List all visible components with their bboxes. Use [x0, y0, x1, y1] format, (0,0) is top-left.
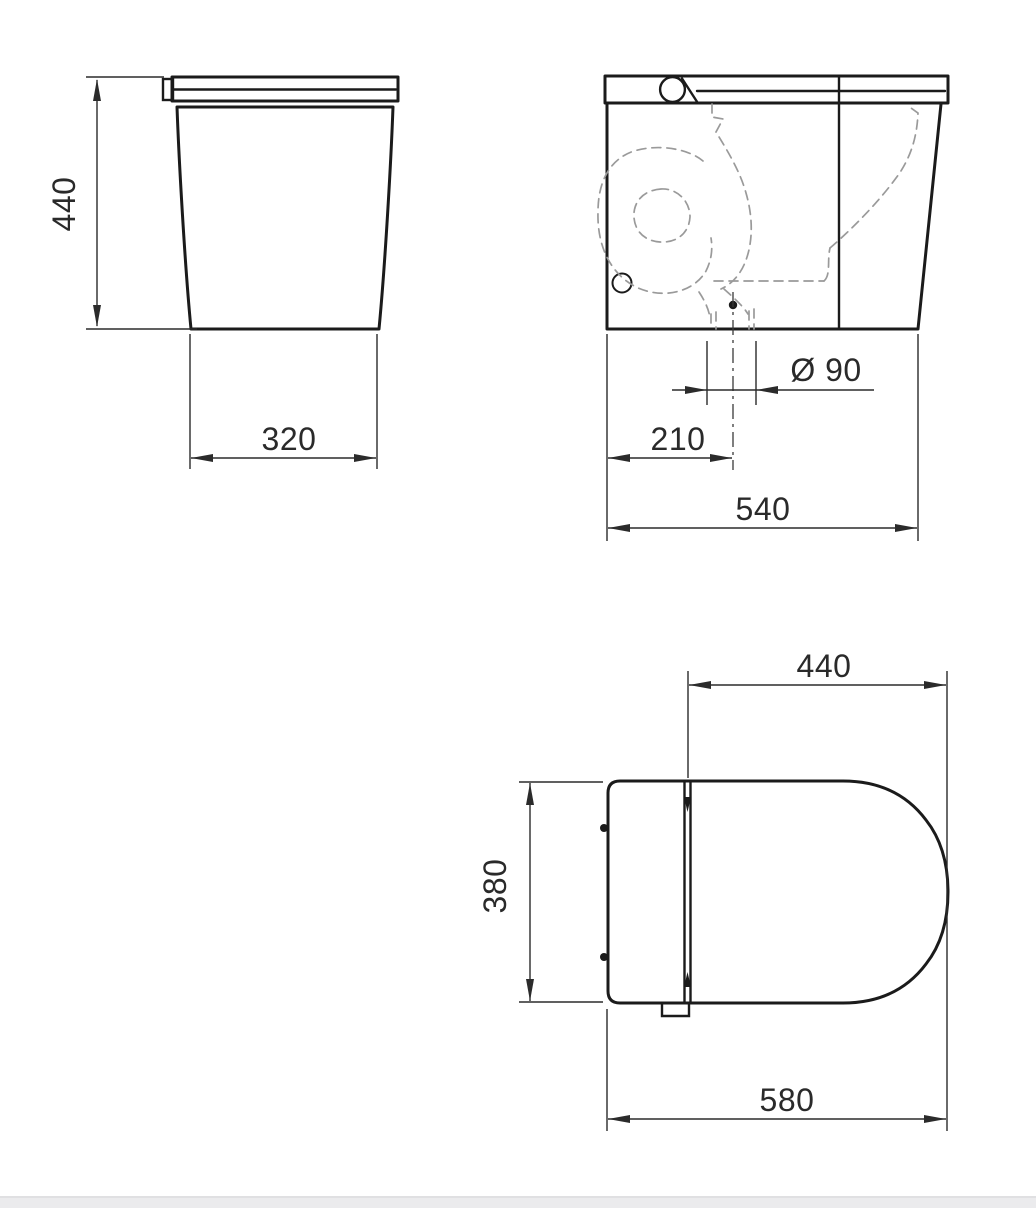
side-dim-outlet-offset: 210	[607, 334, 732, 541]
trap-neck-and-bowl-wall	[712, 104, 751, 289]
arrowhead-right	[685, 386, 707, 394]
arrowhead-right	[924, 1115, 946, 1123]
top-dim-seat-depth: 440	[688, 648, 947, 1131]
dim-label-side-depth: 540	[736, 491, 791, 527]
front-view: 440 320	[46, 77, 398, 469]
dim-label-front-height: 440	[46, 177, 82, 232]
arrowhead-down	[93, 305, 101, 327]
arrowhead-right	[895, 524, 917, 532]
side-lid-band	[605, 76, 948, 103]
trap-outer-loop	[598, 148, 712, 294]
front-body-outline	[177, 107, 393, 329]
dim-label-seat-depth: 440	[797, 648, 852, 684]
arrowhead-left	[608, 454, 630, 462]
flush-riser	[830, 108, 918, 248]
arrowhead-up	[526, 783, 534, 805]
top-back-nub-upper	[600, 824, 608, 832]
side-hidden-trapway	[598, 104, 918, 329]
top-view: 440 380 580	[477, 648, 948, 1131]
dim-label-outlet-offset: 210	[651, 421, 706, 457]
side-body-outline	[607, 103, 941, 329]
arrowhead-right	[924, 681, 946, 689]
outlet-wall-left	[699, 292, 710, 318]
arrowhead-left	[608, 1115, 630, 1123]
arrowhead-up	[93, 79, 101, 101]
outlet-wall-right	[724, 289, 748, 314]
top-back-nub-lower	[600, 953, 608, 961]
toilet-dimension-drawing: 440 320	[0, 0, 1036, 1208]
side-dim-outlet-diameter: Ø 90	[672, 341, 874, 405]
top-dim-depth: 580	[607, 1009, 946, 1131]
dim-label-outlet-diameter: Ø 90	[790, 352, 861, 388]
arrowhead-down	[526, 979, 534, 1001]
footer-strip-fill	[0, 1198, 1036, 1208]
arrowhead-left	[756, 386, 778, 394]
top-body-outline	[608, 781, 948, 1003]
arrowhead-right	[710, 454, 732, 462]
arrowhead-left	[689, 681, 711, 689]
arrowhead-left	[608, 524, 630, 532]
side-view: Ø 90 210 540	[598, 76, 948, 541]
front-dim-base: 320	[190, 334, 377, 469]
front-dim-height: 440	[46, 77, 197, 329]
top-dim-width: 380	[477, 782, 603, 1002]
dim-label-front-base: 320	[262, 421, 317, 457]
dim-label-top-width: 380	[477, 859, 513, 914]
arrowhead-right	[354, 454, 376, 462]
top-bottom-tab	[662, 1004, 689, 1016]
arrowhead-left	[191, 454, 213, 462]
dim-label-top-depth: 580	[760, 1082, 815, 1118]
side-hinge-circle	[660, 77, 685, 102]
footer-strip	[0, 1197, 1036, 1208]
trap-inner-loop	[634, 189, 690, 242]
rim-channel-hook	[824, 248, 830, 281]
drawing-sheet: 440 320	[0, 0, 1036, 1208]
